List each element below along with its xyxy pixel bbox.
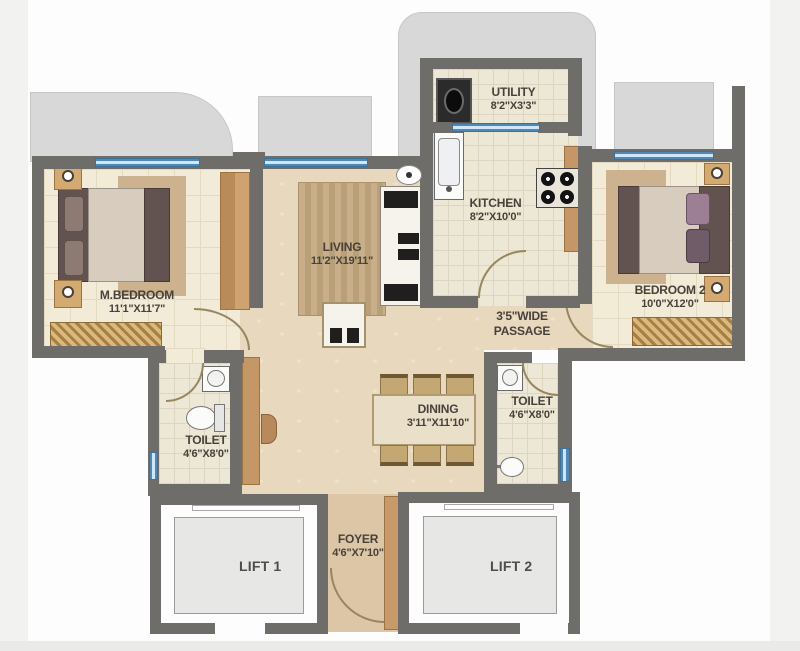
sofa-cushion-icon [398, 249, 419, 260]
page-margin-right [770, 0, 800, 643]
room-label-foyer: FOYER4'6"X7'10" [318, 532, 398, 561]
burner-icon [560, 190, 574, 204]
wall [32, 346, 165, 358]
pillow-icon [64, 196, 84, 232]
armchair-icon [322, 302, 366, 348]
wall [484, 484, 572, 496]
wardrobe-icon [220, 172, 250, 310]
toilet-tank-icon [214, 404, 225, 432]
room-label-living: LIVING11'2"X19'11" [294, 240, 390, 269]
wall [420, 122, 452, 133]
wall [558, 348, 745, 361]
wall [578, 146, 592, 304]
wall [420, 58, 582, 69]
sofa-cushion-icon [384, 284, 418, 301]
room-label-utility: UTILITY8'2"X3'3" [466, 85, 561, 114]
armchair-cushion-icon [347, 328, 359, 343]
page-margin-bottom [0, 641, 800, 651]
room-label-m-bedroom: M.BEDROOM11'1"X11'7" [83, 288, 191, 317]
bed-icon [88, 188, 146, 282]
toilet-bowl-icon [186, 406, 216, 430]
lift-2-opening [520, 623, 568, 634]
room-label-bedroom2: BEDROOM 210'0"X12'0" [620, 283, 720, 312]
lamp-icon [62, 286, 74, 298]
room-label-toilet-right: TOILET4'6"X8'0" [492, 394, 572, 423]
kitchen-sink-basin-icon [438, 138, 460, 186]
pillow-icon [686, 193, 710, 225]
burner-icon [560, 172, 574, 186]
wall [420, 58, 433, 308]
bed-icon [618, 186, 640, 274]
sofa-cushion-icon [384, 191, 418, 208]
armchair-cushion-icon [330, 328, 342, 343]
room-label-dining: DINING3'11"X11'10" [400, 402, 476, 431]
pillow-icon [686, 229, 710, 263]
burner-icon [541, 172, 555, 186]
wall [230, 350, 242, 496]
ceiling-decor-icon [406, 172, 412, 178]
wardrobe-icon [632, 317, 740, 346]
deck-top-left [30, 92, 233, 162]
wall [250, 156, 263, 308]
lamp-icon [62, 170, 74, 182]
living-window [264, 158, 368, 167]
dining-chair-icon [380, 374, 408, 395]
bed-icon [144, 188, 170, 282]
floor-plan: LIFT 1 LIFT 2 UTILITY8'2"X3'3" KITCHEN8'… [0, 0, 800, 651]
room-label-passage: 3'5"WIDEPASSAGE [483, 309, 561, 339]
burner-icon [541, 190, 555, 204]
utility-window [452, 123, 540, 132]
washbasin-bowl-icon [502, 369, 518, 386]
pillow-icon [64, 240, 84, 276]
dining-chair-icon [380, 445, 408, 466]
room-label-toilet-left: TOILET4'6"X8'0" [166, 433, 246, 462]
wall [526, 296, 580, 308]
toilet-bowl-icon [500, 457, 524, 477]
lamp-icon [711, 167, 723, 179]
dining-chair-icon [446, 445, 474, 466]
washing-machine-drum-icon [444, 88, 464, 114]
wall [32, 156, 44, 358]
wall [148, 484, 242, 496]
lift-2-door [444, 504, 554, 510]
wall [732, 86, 745, 354]
faucet-icon [446, 186, 452, 192]
sofa-cushion-icon [398, 233, 419, 244]
lift-1-opening [215, 623, 265, 634]
toilet-left-window [149, 452, 158, 480]
washbasin-bowl-icon [207, 370, 225, 387]
dining-chair-icon [446, 374, 474, 395]
room-label-kitchen: KITCHEN8'2"X10'0" [448, 196, 543, 225]
wall [420, 296, 478, 308]
foyer-shoe-cabinet [384, 496, 399, 630]
toilet-right-window [560, 448, 570, 482]
page-margin-left [0, 0, 28, 643]
wall [484, 352, 497, 496]
console-icon [242, 357, 260, 485]
m-bedroom-door-floor [166, 348, 206, 363]
deck-bedroom2 [614, 82, 714, 150]
dining-chair-icon [413, 445, 441, 466]
lift-1-door [192, 505, 300, 511]
dining-chair-icon [413, 374, 441, 395]
chair-icon [261, 414, 277, 444]
deck-living [258, 96, 372, 162]
bedroom2-window [614, 151, 714, 160]
wall [538, 122, 582, 133]
m-bedroom-window [95, 158, 200, 167]
